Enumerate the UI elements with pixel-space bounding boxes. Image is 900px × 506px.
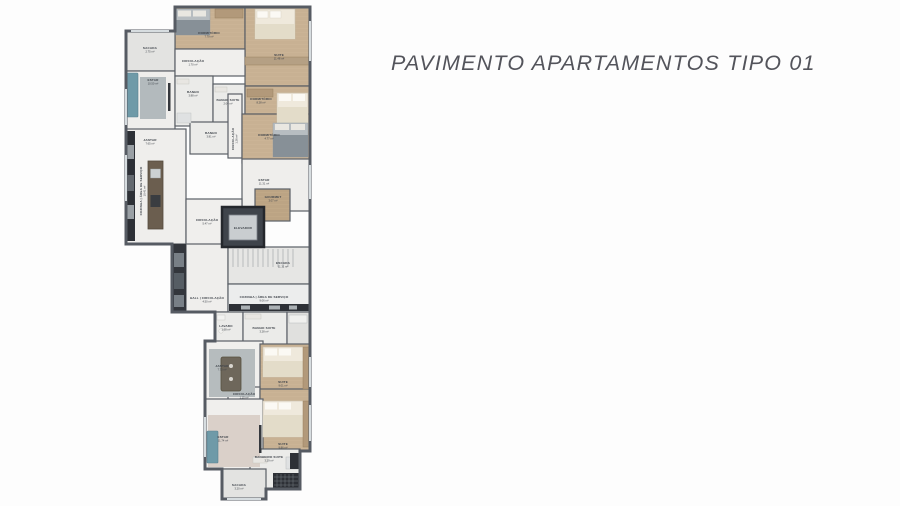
svg-text:SUITE: SUITE — [278, 380, 288, 384]
svg-text:3.88 m²: 3.88 m² — [188, 94, 197, 98]
svg-text:11.48 m²: 11.48 m² — [274, 57, 285, 61]
svg-text:SUITE: SUITE — [274, 53, 284, 57]
svg-text:1.15 m²: 1.15 m² — [239, 396, 248, 400]
svg-text:1.26 m²: 1.26 m² — [235, 134, 239, 143]
svg-text:1.70 m²: 1.70 m² — [188, 63, 197, 67]
svg-text:10.50 m²: 10.50 m² — [148, 82, 159, 86]
svg-text:CIRCULAÇÃO: CIRCULAÇÃO — [182, 58, 205, 63]
svg-text:2.75 m²: 2.75 m² — [145, 50, 154, 54]
svg-text:3.20 m²: 3.20 m² — [234, 487, 243, 491]
svg-text:DORMITÓRIO: DORMITÓRIO — [258, 132, 280, 137]
svg-text:COZINHA | ÁREA DE SERVIÇO: COZINHA | ÁREA DE SERVIÇO — [138, 166, 143, 215]
svg-text:CIRCULAÇÃO: CIRCULAÇÃO — [196, 217, 219, 222]
svg-text:BANHO SUITE: BANHO SUITE — [217, 98, 240, 102]
svg-text:ESTAR: ESTAR — [258, 178, 270, 182]
svg-text:3.29 m²: 3.29 m² — [264, 459, 273, 463]
svg-text:8.28 m²: 8.28 m² — [256, 101, 265, 105]
room-label-elevador: ELEVADOR — [234, 226, 253, 230]
room-label-estar-2: ESTAR 11.31 m² — [258, 178, 270, 186]
svg-text:ESTAR: ESTAR — [217, 435, 229, 439]
svg-text:BANHO SUITE: BANHO SUITE — [253, 326, 276, 330]
svg-text:ESTAR: ESTAR — [147, 78, 159, 82]
svg-text:COZINHA | ÁREA DE SERVIÇO: COZINHA | ÁREA DE SERVIÇO — [240, 294, 289, 299]
svg-text:JANTAR: JANTAR — [215, 364, 229, 368]
svg-text:9.86 m²: 9.86 m² — [278, 446, 287, 450]
svg-text:5.47 m²: 5.47 m² — [202, 222, 211, 226]
room-label-suite-3: SUITE 9.86 m² — [278, 442, 288, 450]
svg-text:JANTAR: JANTAR — [143, 138, 157, 142]
svg-text:4.50 m²: 4.50 m² — [202, 300, 211, 304]
svg-text:DORMITÓRIO: DORMITÓRIO — [250, 96, 272, 101]
svg-text:2.04 m²: 2.04 m² — [223, 102, 232, 106]
svg-text:SACADA: SACADA — [143, 46, 158, 50]
svg-text:7.79 m²: 7.79 m² — [204, 35, 213, 39]
svg-text:BANHO: BANHO — [187, 90, 200, 94]
svg-text:SACADA: SACADA — [232, 483, 247, 487]
room-label-suite-top: SUITE 11.48 m² — [274, 53, 285, 61]
room-label-estar-top: ESTAR 10.50 m² — [147, 78, 159, 86]
svg-text:ESCADA: ESCADA — [276, 261, 291, 265]
svg-text:1.68 m²: 1.68 m² — [221, 328, 230, 332]
svg-text:9.01 m²: 9.01 m² — [278, 384, 287, 388]
svg-text:3.81 m²: 3.81 m² — [206, 135, 215, 139]
svg-text:7.65 m²: 7.65 m² — [145, 142, 154, 146]
svg-text:7.73 m²: 7.73 m² — [217, 368, 226, 372]
page-title: PAVIMENTO APARTAMENTOS TIPO 01 — [391, 51, 816, 76]
room-label-suite-2: SUITE 9.01 m² — [278, 380, 288, 388]
svg-text:DORMITÓRIO: DORMITÓRIO — [198, 30, 220, 35]
svg-text:3.28 m²: 3.28 m² — [259, 330, 268, 334]
svg-text:4.77 m²: 4.77 m² — [264, 137, 273, 141]
svg-text:CIRCULAÇÃO: CIRCULAÇÃO — [233, 391, 256, 396]
svg-text:SUITE: SUITE — [278, 442, 288, 446]
svg-text:BANHO: BANHO — [205, 131, 218, 135]
svg-text:ELEVADOR: ELEVADOR — [234, 226, 253, 230]
svg-text:3.07 m²: 3.07 m² — [268, 199, 277, 203]
svg-text:11.11 m²: 11.11 m² — [278, 265, 288, 269]
svg-text:LAVABO: LAVABO — [219, 324, 233, 328]
svg-text:11.31 m²: 11.31 m² — [259, 182, 270, 186]
floor-plan-svg: SACADA 2.75 m² DORMITÓRIO 7.79 m² SUITE … — [123, 5, 313, 501]
svg-text:10.41 m²: 10.41 m² — [143, 186, 147, 197]
room-label-estar-3: ESTAR 11.74 m² — [217, 435, 229, 443]
svg-text:CIRCULAÇÃO: CIRCULAÇÃO — [230, 127, 235, 150]
svg-text:HALL | CIRCULAÇÃO: HALL | CIRCULAÇÃO — [190, 295, 225, 300]
svg-text:11.74 m²: 11.74 m² — [218, 439, 229, 443]
room-escada — [228, 247, 310, 284]
svg-text:9.06 m²: 9.06 m² — [259, 299, 268, 303]
floor-plan: SACADA 2.75 m² DORMITÓRIO 7.79 m² SUITE … — [123, 5, 313, 501]
svg-text:BANHEIRO SUITE: BANHEIRO SUITE — [255, 455, 284, 459]
svg-text:GOURMET: GOURMET — [265, 195, 282, 199]
